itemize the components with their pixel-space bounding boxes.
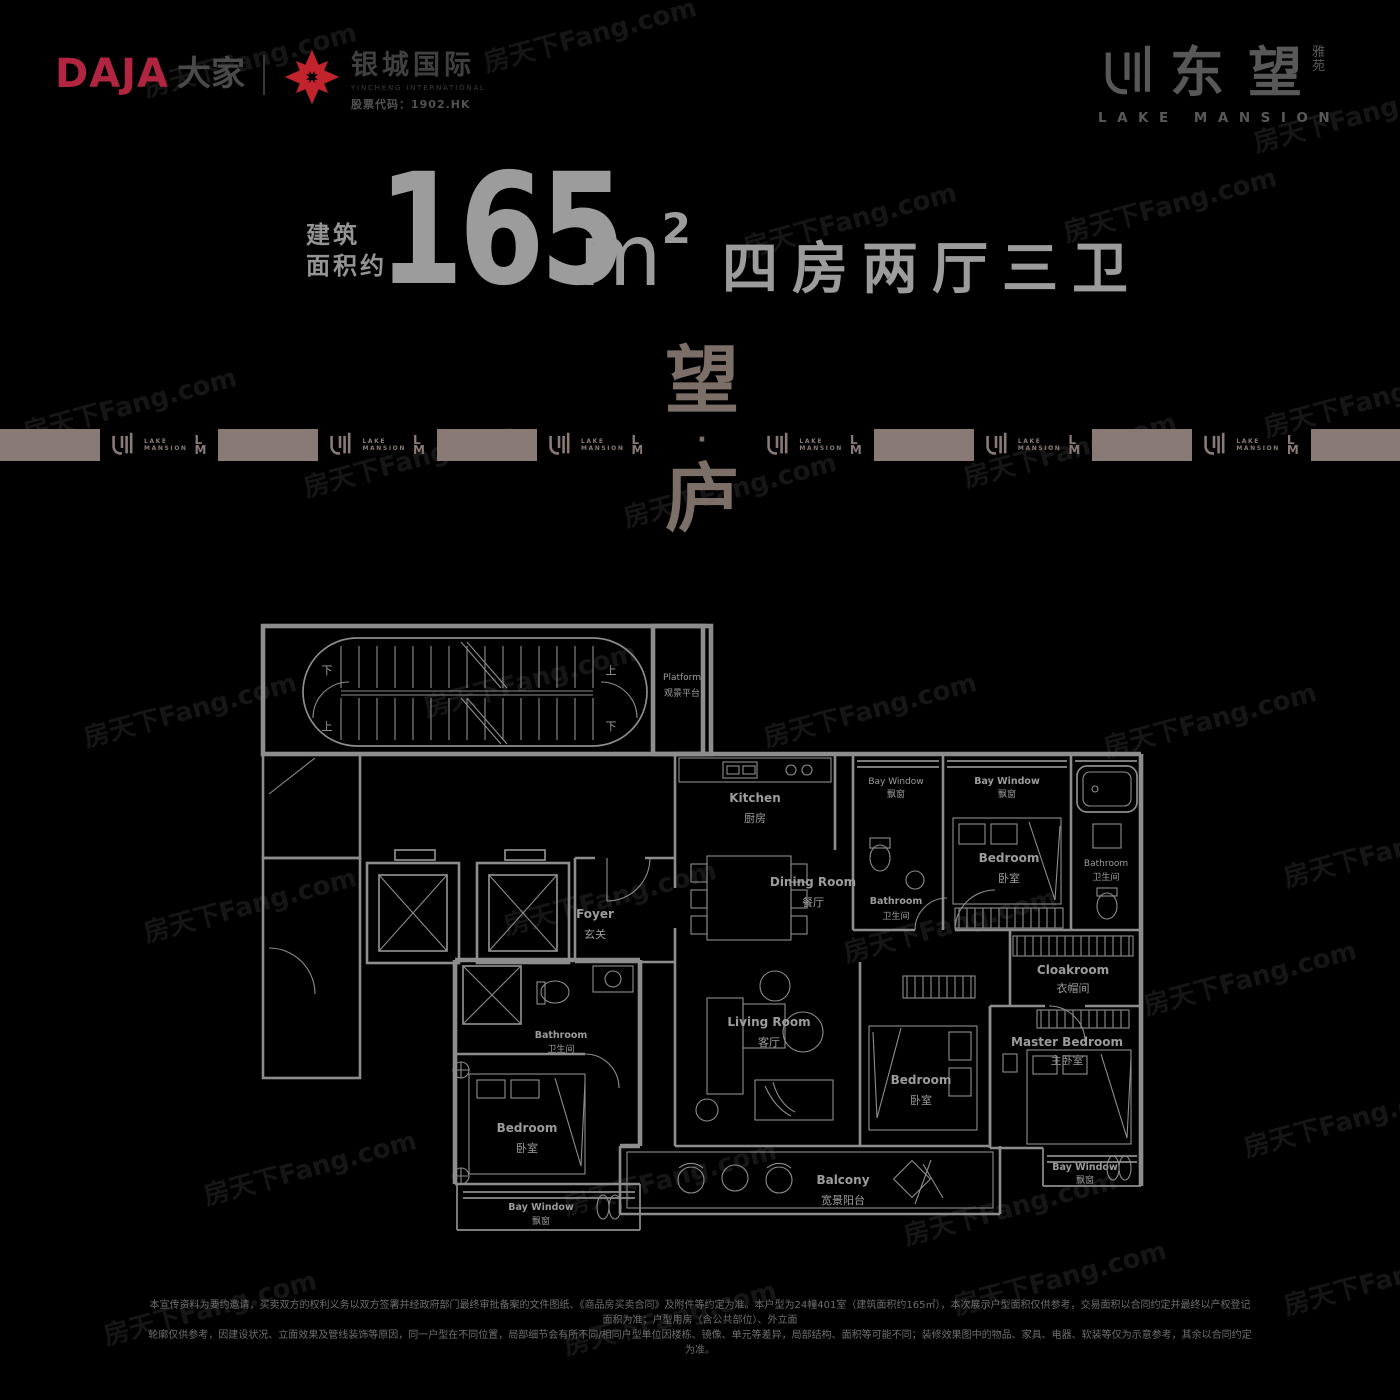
foyer: Foyer 玄关 [575,754,675,962]
band-pattern-unit: LAKEMANSION LM [874,429,1080,461]
brand-suffix: 雅苑 [1312,46,1325,74]
lake-mansion-mark-icon [546,432,572,458]
lake-mansion-mark-icon [109,432,135,458]
left-wing: Bathroom 卫生间 Bedroom 卧室 Bay Window 飘窗 [453,960,640,1230]
stair-up-label: 上 [606,664,617,677]
bathroom-label-cn: 卫生间 [1092,871,1119,883]
lake-mansion-mark-icon [1098,44,1156,102]
slogan-char-1: 望 [654,340,750,422]
band-pattern-unit: LAKEMANSION LM [437,429,643,461]
band-brand-text: LAKEMANSION [144,438,188,453]
slogan-wang-lu: 望 · 庐 [654,340,750,540]
bedroom-top-right: Bay Window 飘窗 Bedroom 卧室 [953,776,1063,928]
bay-window-label-cn: 飘窗 [1076,1174,1094,1186]
core-side-rooms [263,754,360,1078]
band-monogram: LM [850,435,862,455]
bathroom-label-cn: 卫生间 [547,1043,574,1055]
bay-window-label-en: Bay Window [974,776,1040,787]
brand-row: 东望 雅苑 [1098,44,1348,102]
bathroom-middle: Bay Window 飘窗 Bathroom 卫生间 [868,777,924,922]
cloakroom: Cloakroom 衣帽间 [1013,936,1133,995]
lake-mansion-mark-icon [983,432,1009,458]
master-bedroom-label-en: Master Bedroom [1011,1035,1123,1049]
living-room: Living Room 客厅 [696,971,833,1121]
kitchen: Kitchen 厨房 [679,758,831,825]
band-brand-text: LAKEMANSION [362,438,406,453]
band-pattern-unit: LAKEMANSION LM [218,429,424,461]
watermark-text: 房天下Fang.com [479,0,700,80]
brand-name-cn: 东望 [1170,44,1326,102]
band-solid-block [218,429,318,461]
floor-plan: 下 上 上 下 Platform 观景平台 Foy [255,618,1355,1246]
stair-down-label: 下 [606,720,617,733]
band-brand-text: LAKEMANSION [799,438,843,453]
developer-logos: DAJA 大家 银城国际 YINCHENG INTERNATIONAL 股票代码… [55,50,486,112]
bay-window-label-cn: 飘窗 [532,1215,550,1227]
band-pattern-unit: LAKEMANSION LM [0,429,206,461]
dining-label-en: Dining Room [770,875,856,889]
daja-logo-latin: DAJA [55,50,169,98]
area-prefix-line1: 建筑 [306,220,387,251]
band-brand-text: LAKEMANSION [1236,438,1280,453]
bedroom-label-cn: 卧室 [516,1141,538,1155]
room-count-title: 四房两厅三卫 [722,224,1142,305]
unit-m: m [578,206,662,306]
yincheng-star-icon [283,48,341,106]
master-bedroom: Master Bedroom 主卧室 Bay Window 飘窗 [1003,1010,1131,1186]
dining-room: Dining Room 餐厅 [691,856,856,940]
balcony: Balcony 宽景阳台 [620,1146,1000,1214]
yincheng-logo-text: 银城国际 YINCHENG INTERNATIONAL 股票代码：1902.HK [351,50,486,112]
dining-label-cn: 餐厅 [802,895,824,909]
cloakroom-label-en: Cloakroom [1037,963,1109,977]
bedroom-label-cn: 卧室 [998,871,1020,885]
lake-mansion-mark-icon [1201,432,1227,458]
stair-down-label: 下 [322,664,333,677]
unit-superscript: 2 [662,204,691,253]
poster-canvas: 房天下Fang.com房天下Fang.com房天下Fang.com房天下Fang… [0,0,1400,1400]
band-monogram: LM [1287,435,1299,455]
bathroom-label-en: Bathroom [535,1030,588,1041]
elevators [367,850,569,963]
slogan-dot: · [654,422,750,458]
bedroom-label-en: Bedroom [979,851,1040,865]
yincheng-stock-code: 股票代码：1902.HK [351,96,486,112]
bay-window-label-cn: 飘窗 [887,788,905,800]
band-solid-block [0,429,100,461]
brand-name-en: LAKE MANSION [1098,110,1348,126]
band-pattern-unit: LAKEMANSION LM [1311,429,1400,461]
band-monogram: LM [195,435,207,455]
lake-mansion-mark-icon [327,432,353,458]
foyer-label-en: Foyer [576,907,614,921]
bedroom-bottom-middle: Bedroom 卧室 [860,962,990,1148]
kitchen-label-en: Kitchen [729,791,781,805]
band-brand-text: LAKEMANSION [581,438,625,453]
foyer-label-cn: 玄关 [584,927,606,941]
area-prefix: 建筑 面积约 [306,220,387,282]
band-solid-block [1092,429,1192,461]
kitchen-label-cn: 厨房 [744,812,766,825]
bay-window-label-en: Bay Window [868,777,923,787]
living-room-label-en: Living Room [727,1015,810,1029]
balcony-label-cn: 宽景阳台 [821,1193,865,1207]
master-bedroom-label-cn: 主卧室 [1051,1053,1084,1067]
stair-up-label: 上 [322,720,333,733]
disclaimer-line-1: 本宣传资料为要约邀请，买卖双方的权利义务以双方签署并经政府部门最终审批备案的文件… [145,1298,1255,1328]
slogan-char-2: 庐 [654,458,750,540]
bedroom-label-en: Bedroom [497,1121,558,1135]
stairwell: 下 上 上 下 Platform 观景平台 [263,626,711,754]
area-unit: m2 [578,208,691,304]
logo-separator [263,55,265,95]
bay-window-label-en: Bay Window [1052,1162,1118,1173]
area-prefix-line2: 面积约 [306,251,387,282]
band-brand-text: LAKEMANSION [1018,438,1062,453]
band-solid-block [874,429,974,461]
band-monogram: LM [1068,435,1080,455]
balcony-label-en: Balcony [816,1173,869,1187]
band-pattern-unit: LAKEMANSION LM [1092,429,1298,461]
daja-logo-cn: 大家 [177,50,245,98]
bedroom-label-cn: 卧室 [910,1093,932,1107]
disclaimer-line-2: 轮廓仅供参考，因建设状况、立面效果及管线装饰等原因，同一户型在不同位置，局部细节… [145,1328,1255,1358]
yincheng-name: 银城国际 [351,50,486,82]
yincheng-name-en: YINCHENG INTERNATIONAL [351,84,486,92]
cloakroom-label-cn: 衣帽间 [1057,981,1090,995]
bay-window-label-cn: 飘窗 [998,788,1016,800]
living-room-label-cn: 客厅 [758,1035,780,1049]
band-solid-block [1311,429,1400,461]
bedroom-label-en: Bedroom [891,1073,952,1087]
bay-window-label-en: Bay Window [508,1202,574,1213]
bathroom-right: Bathroom 卫生间 [1077,766,1137,919]
bathroom-label-en: Bathroom [870,896,923,907]
band-monogram: LM [413,435,425,455]
lake-mansion-mark-icon [764,432,790,458]
platform-label-cn: 观景平台 [664,687,700,699]
project-brand-logo: 东望 雅苑 LAKE MANSION [1098,44,1348,126]
bathroom-label-cn: 卫生间 [882,910,909,922]
bathroom-label-en: Bathroom [1084,859,1128,869]
platform-label-en: Platform [663,673,701,683]
band-solid-block [437,429,537,461]
disclaimer: 本宣传资料为要约邀请，买卖双方的权利义务以双方签署并经政府部门最终审批备案的文件… [145,1298,1255,1358]
